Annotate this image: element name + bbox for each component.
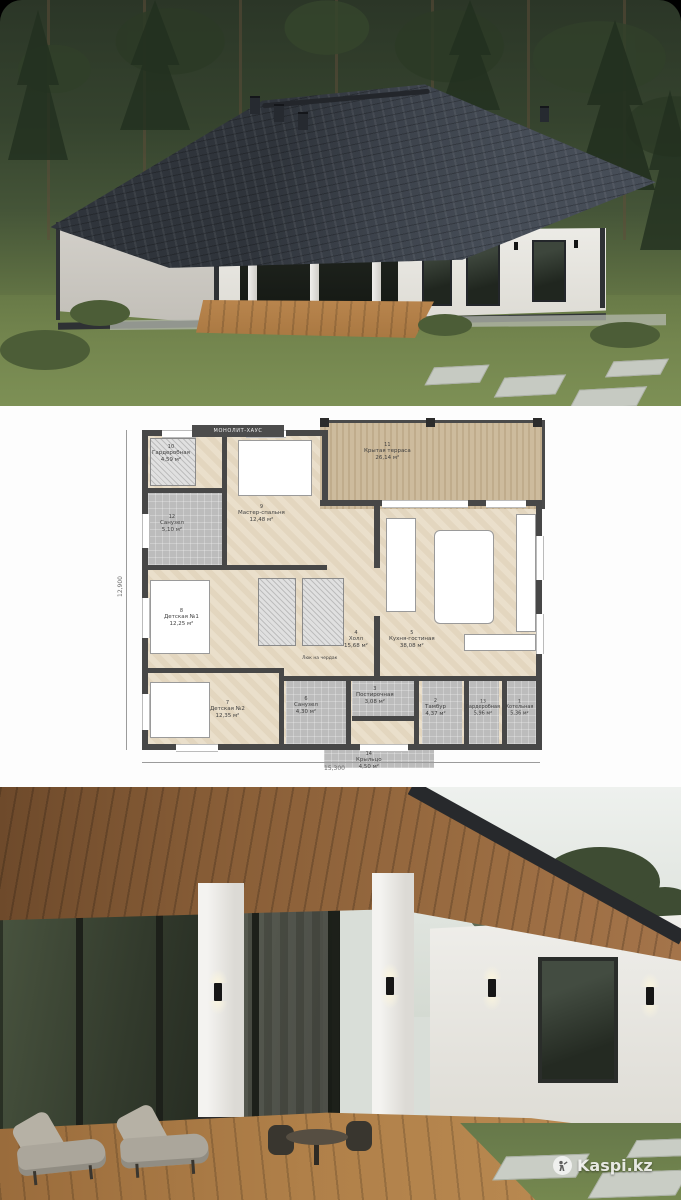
path-slab (494, 374, 566, 397)
window (538, 957, 618, 1083)
window-marker (162, 430, 196, 438)
terrace-photo (0, 787, 681, 1200)
floorplan-section: МОНОЛИТ-ХАУС 10 Гардеробная 4,59 м² 12 С… (0, 406, 681, 787)
bed (238, 440, 312, 496)
window-marker (536, 536, 544, 580)
room-label-master: 9 Мастер-спальня 12,48 м² (238, 504, 285, 524)
bed (150, 682, 210, 738)
room-label-child2: 7 Детская №2 12,35 м² (210, 700, 245, 720)
wall (346, 676, 351, 744)
room-label-kitchen: 5 Кухня-гостиная 38,08 м² (389, 630, 435, 650)
wall (352, 716, 419, 721)
dimension-bottom: 15,300 (324, 765, 345, 772)
fireplace (386, 518, 416, 612)
window-marker (176, 744, 218, 752)
room-label-porch: 14 Крыльцо 4,50 м² (356, 751, 382, 771)
room-label-bath2: 6 Санузел 4,30 м² (294, 696, 318, 716)
wall (374, 506, 380, 568)
room-label-boiler: 1 Котельная 5,36 м² (506, 699, 534, 717)
wall (222, 488, 227, 570)
window-marker (486, 500, 526, 508)
chimney (298, 112, 308, 130)
kitchen-counter (516, 514, 536, 632)
window-marker (536, 614, 544, 654)
room-label-child1: 8 Детская №1 12,25 м² (164, 608, 199, 628)
attic-hatch-note: Люк на чердак (302, 656, 337, 662)
wood-deck (196, 300, 434, 338)
wall (279, 676, 540, 681)
window (532, 240, 566, 302)
window-mullion (156, 885, 163, 1147)
closet (302, 578, 344, 646)
dimension-line (126, 430, 127, 750)
kitchen-island (464, 634, 536, 651)
bush (0, 330, 90, 370)
wall-sconce (646, 987, 654, 1005)
exterior-photo (0, 0, 681, 406)
door-marker (382, 500, 468, 508)
room-label-wardrobe2: 13 Гардеробная 5,96 м² (466, 699, 500, 717)
wall (374, 616, 380, 676)
dimension-line (142, 762, 540, 763)
terrace-post (533, 418, 542, 427)
wall (322, 430, 328, 505)
window-mullion (252, 885, 259, 1147)
chimney (540, 106, 549, 122)
window-marker (142, 694, 150, 730)
room-label-terrace: 11 Крытая терраса 26,14 м² (364, 442, 411, 462)
watermark-label: Kaspi.kz (577, 1156, 653, 1175)
wall-sconce (488, 979, 496, 997)
wall-sconce (574, 240, 578, 248)
listing-image-card: МОНОЛИТ-ХАУС 10 Гардеробная 4,59 м² 12 С… (0, 0, 681, 1200)
patio-chair (346, 1121, 372, 1151)
patio-table (286, 1129, 348, 1145)
dimension-left: 12,900 (117, 576, 124, 597)
wall (414, 676, 419, 744)
room-label-hall: 4 Холл 15,68 м² (344, 630, 368, 650)
corner-trim (56, 222, 60, 320)
room-label-vestibule: 2 Тамбур 4,37 м² (425, 698, 446, 718)
terrace-post (426, 418, 435, 427)
wall-sconce (386, 977, 394, 995)
path-slab (569, 386, 647, 406)
bush (590, 322, 660, 348)
terrace-floor (320, 420, 545, 509)
wall-sconce (214, 983, 222, 1001)
watermark: Kaspi.kz (553, 1156, 653, 1175)
room-label-bath1: 12 Санузел 5,10 м² (160, 514, 184, 534)
chimney (274, 104, 284, 122)
path-slab (424, 365, 489, 386)
wall (142, 488, 227, 493)
terrace-post (320, 418, 329, 427)
bush (70, 300, 130, 326)
builder-brand: МОНОЛИТ-ХАУС (192, 425, 284, 437)
wall (142, 668, 284, 673)
room-label-wardrobe1: 10 Гардеробная 4,59 м² (152, 444, 190, 464)
floorplan: МОНОЛИТ-ХАУС 10 Гардеробная 4,59 м² 12 С… (134, 418, 548, 770)
wall (142, 565, 327, 570)
kaspi-logo-icon (553, 1156, 572, 1175)
chimney (250, 96, 260, 114)
corner-trim (600, 228, 605, 308)
window-marker (142, 598, 150, 638)
dining-table (434, 530, 494, 624)
wall (222, 430, 227, 490)
path-slab (605, 359, 669, 378)
window-mullion (332, 885, 339, 1147)
closet (258, 578, 296, 646)
wall-sconce (514, 242, 518, 250)
bush (418, 314, 472, 336)
window-marker (142, 514, 150, 548)
room-label-laundry: 3 Постирочная 3,08 м² (356, 686, 394, 706)
window-mullion (76, 885, 83, 1147)
